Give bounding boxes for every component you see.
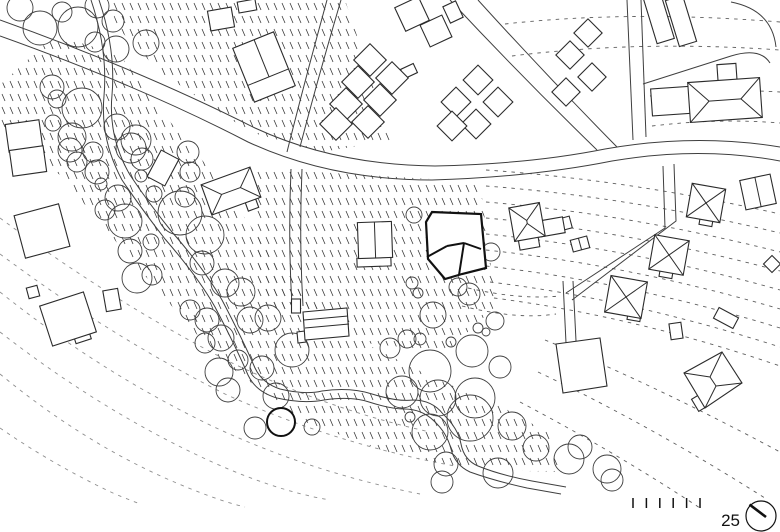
building-footprint xyxy=(556,41,584,69)
contour-line xyxy=(505,16,780,24)
tree-circle xyxy=(7,0,33,21)
building-footprint xyxy=(443,1,463,23)
building-group xyxy=(357,221,392,258)
building-group xyxy=(669,322,683,340)
building-group xyxy=(437,111,467,141)
building-group xyxy=(605,276,648,319)
tree-circle xyxy=(85,0,109,18)
building-footprint xyxy=(483,87,513,117)
building-footprint xyxy=(552,78,580,106)
contour-line xyxy=(0,428,140,504)
site-plan: 25 xyxy=(0,0,780,532)
building-group xyxy=(574,19,602,47)
tree-circle xyxy=(244,417,266,439)
building-group xyxy=(26,285,39,298)
scale-label: 25 xyxy=(721,511,740,530)
tree-circle xyxy=(456,335,488,367)
tree-circle xyxy=(489,356,511,378)
building-group xyxy=(14,204,70,258)
building-footprint xyxy=(713,308,738,329)
building-group xyxy=(570,236,590,252)
building-footprint xyxy=(303,308,349,340)
contour-line xyxy=(652,121,780,126)
building-group xyxy=(556,41,584,69)
building-footprint xyxy=(103,288,121,311)
building-group xyxy=(463,65,493,95)
building-footprint xyxy=(292,299,301,313)
building-footprint xyxy=(9,146,46,176)
building-group xyxy=(509,203,545,242)
building-footprint xyxy=(441,87,471,117)
building-footprint xyxy=(26,285,39,298)
road-line xyxy=(573,281,576,341)
building-footprint xyxy=(669,322,683,340)
tree-circle xyxy=(601,469,623,491)
building-group xyxy=(740,174,777,210)
tree-circle xyxy=(482,328,490,336)
tree-circle xyxy=(431,471,453,493)
building-footprint xyxy=(574,19,602,47)
building-group xyxy=(688,78,763,123)
tree-circle xyxy=(58,7,98,47)
tree-circle xyxy=(267,408,295,436)
building-roof-line xyxy=(527,221,528,224)
contour-line xyxy=(512,46,780,56)
building-group xyxy=(292,299,301,313)
building-group xyxy=(649,235,690,276)
tree-circle xyxy=(52,2,72,22)
road-line xyxy=(563,281,566,343)
building-footprint xyxy=(437,111,467,141)
north-arrow xyxy=(746,501,776,531)
building-group xyxy=(578,63,606,91)
road-line xyxy=(627,0,633,140)
tree-circle xyxy=(473,323,483,333)
contour-line xyxy=(0,374,245,507)
tree-circle xyxy=(23,11,57,45)
building-group xyxy=(686,183,725,222)
building-group xyxy=(713,308,738,329)
building-footprint xyxy=(463,65,493,95)
building-group xyxy=(103,288,121,311)
tree-circle xyxy=(486,312,504,330)
tree-circle xyxy=(216,378,240,402)
building-footprint xyxy=(207,7,234,31)
building-group xyxy=(9,146,46,176)
scale-bar: 25 xyxy=(633,498,740,530)
tree-circle xyxy=(568,435,592,459)
building-group xyxy=(443,1,463,23)
building-footprint xyxy=(578,63,606,91)
site-plan-drawing: 25 xyxy=(0,0,780,532)
building-group xyxy=(552,78,580,106)
road-line xyxy=(731,2,776,47)
road-line xyxy=(641,0,646,137)
tree-circle xyxy=(593,455,621,483)
building-group xyxy=(483,87,513,117)
building-footprint xyxy=(764,256,780,273)
building-group xyxy=(441,87,471,117)
building-footprint xyxy=(556,338,607,393)
building-group xyxy=(207,7,234,31)
building-footprint xyxy=(14,204,70,258)
building-group xyxy=(764,256,780,273)
